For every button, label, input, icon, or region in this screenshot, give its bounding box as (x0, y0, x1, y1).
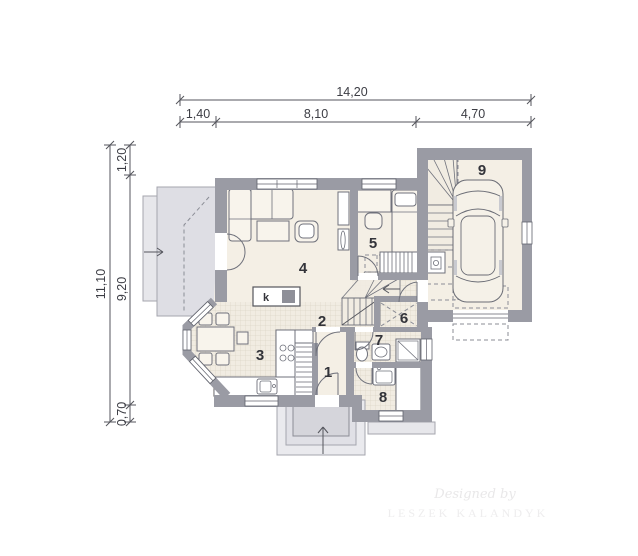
wall-right-main-upper (417, 178, 428, 280)
side-table (237, 332, 248, 344)
dimension-lines-top: 14,20 1,40 8,10 4,70 (176, 85, 535, 128)
utility-outside-step (368, 422, 435, 434)
terrace (143, 187, 217, 316)
coffee-table (257, 221, 289, 241)
room-number-2-hall: 2 (318, 313, 326, 330)
wall-stub-hall (312, 327, 316, 332)
dim-left-seg-2: 9,20 (115, 277, 129, 301)
room-number-6-wc: 6 (400, 310, 408, 327)
utility-counter (396, 365, 421, 411)
room-number-5-bedroom: 5 (369, 235, 377, 252)
utility-window (379, 411, 403, 421)
wheel (499, 260, 502, 275)
shower (396, 339, 420, 362)
dim-left-seg-3: 0,70 (115, 402, 129, 426)
living-room-window (257, 179, 317, 189)
wall-wc-top (374, 296, 418, 302)
fireplace: k (253, 287, 300, 306)
car (448, 180, 508, 302)
dining-table (197, 327, 234, 351)
watermark-line1: Designed by (433, 487, 516, 502)
dim-top-seg-1: 1,40 (186, 107, 210, 121)
garage-door-opening (453, 310, 508, 322)
wall-living-bedroom (350, 190, 358, 273)
entry-porch (277, 400, 365, 455)
utility-door-opening (356, 362, 372, 368)
wheel (454, 196, 457, 211)
wardrobe (380, 252, 418, 273)
bathroom-window (421, 339, 432, 360)
front-door-opening (315, 395, 339, 407)
bedroom-door-opening (358, 273, 378, 280)
bedroom-window (362, 179, 396, 189)
garage-window (522, 222, 532, 244)
fireplace-label: k (263, 292, 270, 304)
bed (392, 190, 419, 254)
boiler (427, 252, 445, 273)
room-number-1-entry: 1 (324, 364, 332, 381)
side-mirror (448, 219, 454, 227)
wheel (499, 196, 502, 211)
kitchen-tall-units (295, 330, 313, 397)
dim-left-total: 11,10 (94, 269, 108, 299)
fireplace-box (282, 290, 295, 303)
desk-chair (365, 213, 382, 229)
designer-watermark: Designed by LESZEK KALANDYK (388, 487, 549, 520)
room-number-7-bath: 7 (375, 332, 383, 349)
wall-top-garage (417, 148, 532, 160)
kitchen-window (245, 396, 278, 406)
desk (357, 190, 391, 212)
room-number-3-dining: 3 (256, 347, 264, 364)
wheel (454, 260, 457, 275)
floor-plan-page: 14,20 1,40 8,10 4,70 11,10 1,20 9,20 0,7… (0, 0, 638, 556)
side-mirror (502, 219, 508, 227)
tv-cabinet (338, 192, 349, 250)
dim-top-seg-2: 8,10 (304, 107, 328, 121)
room-number-8-utility: 8 (379, 389, 387, 406)
bay-window-left (183, 330, 191, 350)
room-number-9-garage: 9 (478, 162, 486, 179)
wall-left-lower (215, 270, 227, 302)
room-number-4-living: 4 (299, 260, 308, 277)
armchair (295, 221, 318, 242)
watermark-line2: LESZEK KALANDYK (388, 506, 549, 520)
bath-door-opening (355, 327, 373, 332)
dim-top-total: 14,20 (336, 85, 367, 99)
wall-stub-hall2 (340, 327, 347, 332)
dim-top-seg-3: 4,70 (461, 107, 485, 121)
landing-door-opening (417, 280, 428, 302)
floor-plan-drawing: 14,20 1,40 8,10 4,70 11,10 1,20 9,20 0,7… (0, 0, 638, 556)
terrace-door-opening (215, 233, 227, 270)
wall-left-upper (215, 178, 227, 233)
dim-left-seg-1: 1,20 (115, 148, 129, 172)
dimension-lines-left: 11,10 1,20 9,20 0,70 (94, 141, 136, 426)
wall-wc-left (374, 296, 380, 332)
